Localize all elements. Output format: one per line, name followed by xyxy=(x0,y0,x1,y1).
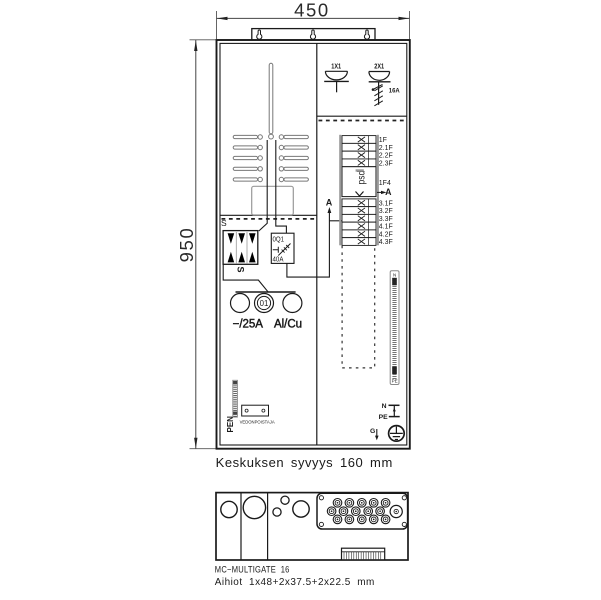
svg-text:PE: PE xyxy=(379,414,389,421)
svg-text:PE: PE xyxy=(392,379,398,384)
svg-text:G: G xyxy=(370,428,375,435)
svg-text:VEDONPOISTAJA: VEDONPOISTAJA xyxy=(240,419,275,424)
svg-text:psd: psd xyxy=(356,171,368,185)
svg-text:Al/Cu: Al/Cu xyxy=(274,318,302,330)
svg-text:MC−MULTIGATE 16: MC−MULTIGATE 16 xyxy=(215,564,290,575)
svg-text:N: N xyxy=(382,403,387,410)
svg-text:0Q1: 0Q1 xyxy=(272,236,284,243)
svg-text:S: S xyxy=(236,267,246,273)
svg-text:2X1: 2X1 xyxy=(374,63,384,71)
svg-text:A: A xyxy=(326,198,333,208)
svg-text:40A: 40A xyxy=(272,256,284,263)
svg-text:−/25A: −/25A xyxy=(233,318,264,330)
svg-text:Keskuksen syvyys 160 mm: Keskuksen syvyys 160 mm xyxy=(216,455,393,470)
svg-text:1X1: 1X1 xyxy=(331,63,341,71)
svg-text:S: S xyxy=(221,218,227,228)
svg-text:16A: 16A xyxy=(389,87,400,94)
svg-text:PEN: PEN xyxy=(226,416,235,433)
svg-text:A: A xyxy=(385,187,392,197)
svg-text:4.3F: 4.3F xyxy=(379,237,394,246)
svg-text:2.3F: 2.3F xyxy=(379,158,394,167)
svg-text:01: 01 xyxy=(260,299,269,308)
svg-text:1F4: 1F4 xyxy=(379,178,391,187)
svg-text:N: N xyxy=(393,273,396,278)
svg-text:950: 950 xyxy=(176,227,197,263)
svg-text:450: 450 xyxy=(294,0,330,20)
svg-text:Aihiot 1x48+2x37.5+2x22.5 mm: Aihiot 1x48+2x37.5+2x22.5 mm xyxy=(215,577,375,588)
